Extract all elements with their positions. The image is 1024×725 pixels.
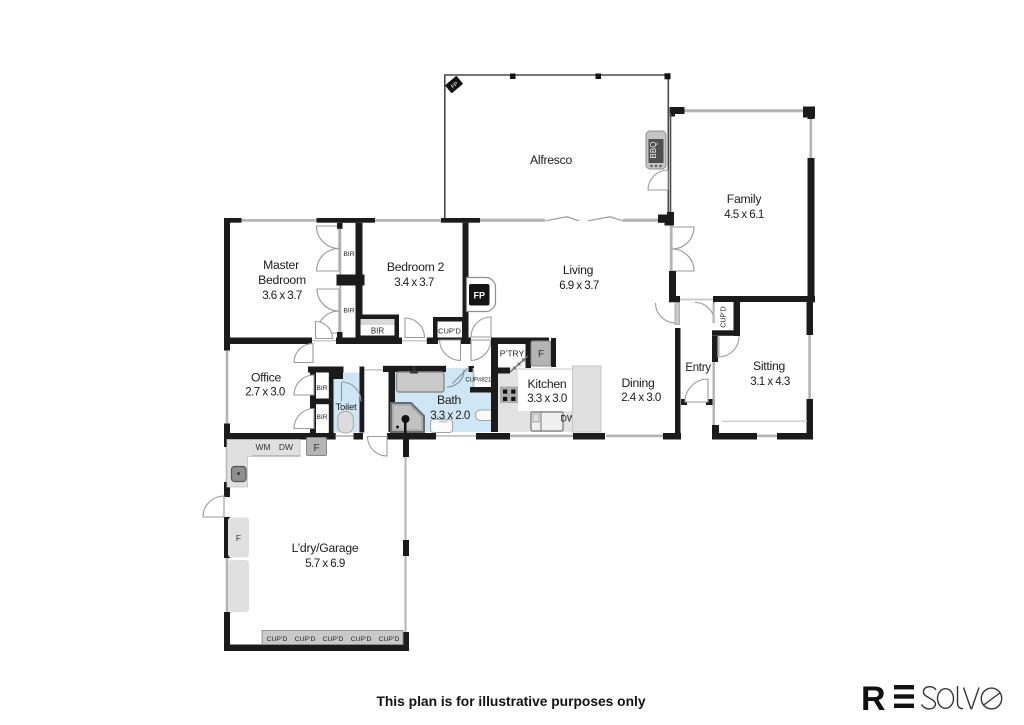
svg-text:3.6 x 3.7: 3.6 x 3.7	[262, 289, 302, 302]
svg-text:2.4 x 3.0: 2.4 x 3.0	[621, 391, 661, 404]
svg-text:Bedroom 2: Bedroom 2	[387, 260, 445, 274]
svg-text:Bedroom: Bedroom	[258, 273, 306, 287]
svg-text:6.9 x 3.7: 6.9 x 3.7	[559, 279, 599, 292]
svg-text:CUP’D: CUP’D	[295, 636, 316, 643]
svg-text:F: F	[236, 533, 241, 543]
svg-text:CUP’D: CUP’D	[721, 306, 728, 327]
svg-text:3.1 x 4.3: 3.1 x 4.3	[750, 375, 790, 388]
svg-text:Entry: Entry	[685, 362, 711, 374]
svg-text:BIR: BIR	[343, 251, 354, 258]
svg-text:CUP’D: CUP’D	[267, 636, 288, 643]
svg-text:CUP’D: CUP’D	[323, 636, 344, 643]
svg-text:L’dry/Garage: L’dry/Garage	[292, 541, 359, 555]
svg-text:Toilet: Toilet	[336, 402, 358, 413]
svg-text:Dining: Dining	[621, 376, 654, 390]
svg-text:Living: Living	[563, 263, 593, 277]
svg-text:2.7 x 3.0: 2.7 x 3.0	[245, 386, 285, 399]
svg-text:BBQ: BBQ	[649, 142, 658, 159]
svg-text:FP: FP	[474, 291, 486, 301]
svg-text:CUP’D: CUP’D	[379, 636, 400, 643]
svg-text:CUP’D: CUP’D	[438, 327, 462, 336]
svg-text:Office: Office	[251, 371, 282, 385]
svg-text:Master: Master	[263, 258, 299, 272]
svg-text:F: F	[313, 443, 319, 454]
svg-text:3.3 x 3.0: 3.3 x 3.0	[527, 392, 567, 405]
svg-text:DW: DW	[279, 442, 293, 452]
svg-text:Alfresco: Alfresco	[530, 153, 572, 167]
svg-text:Kitchen: Kitchen	[528, 377, 567, 391]
svg-text:CUP’D: CUP’D	[351, 636, 372, 643]
svg-text:BIR: BIR	[316, 385, 327, 392]
svg-text:BIR: BIR	[371, 327, 385, 336]
svg-text:F: F	[538, 349, 544, 360]
svg-text:R: R	[861, 680, 886, 718]
svg-text:5.7 x 6.9: 5.7 x 6.9	[305, 557, 345, 570]
svg-text:Family: Family	[727, 192, 763, 206]
svg-text:3.4 x 3.7: 3.4 x 3.7	[394, 276, 434, 289]
svg-text:This plan is for illustrative: This plan is for illustrative purposes o…	[376, 694, 645, 709]
svg-text:BIR: BIR	[343, 308, 354, 315]
svg-text:WM: WM	[255, 442, 270, 452]
svg-text:4.5 x 6.1: 4.5 x 6.1	[724, 208, 764, 221]
svg-text:Sitting: Sitting	[753, 359, 785, 373]
svg-text:Bath: Bath	[437, 393, 461, 407]
svg-text:P’TRY: P’TRY	[500, 349, 525, 359]
svg-text:BIR: BIR	[316, 414, 327, 421]
